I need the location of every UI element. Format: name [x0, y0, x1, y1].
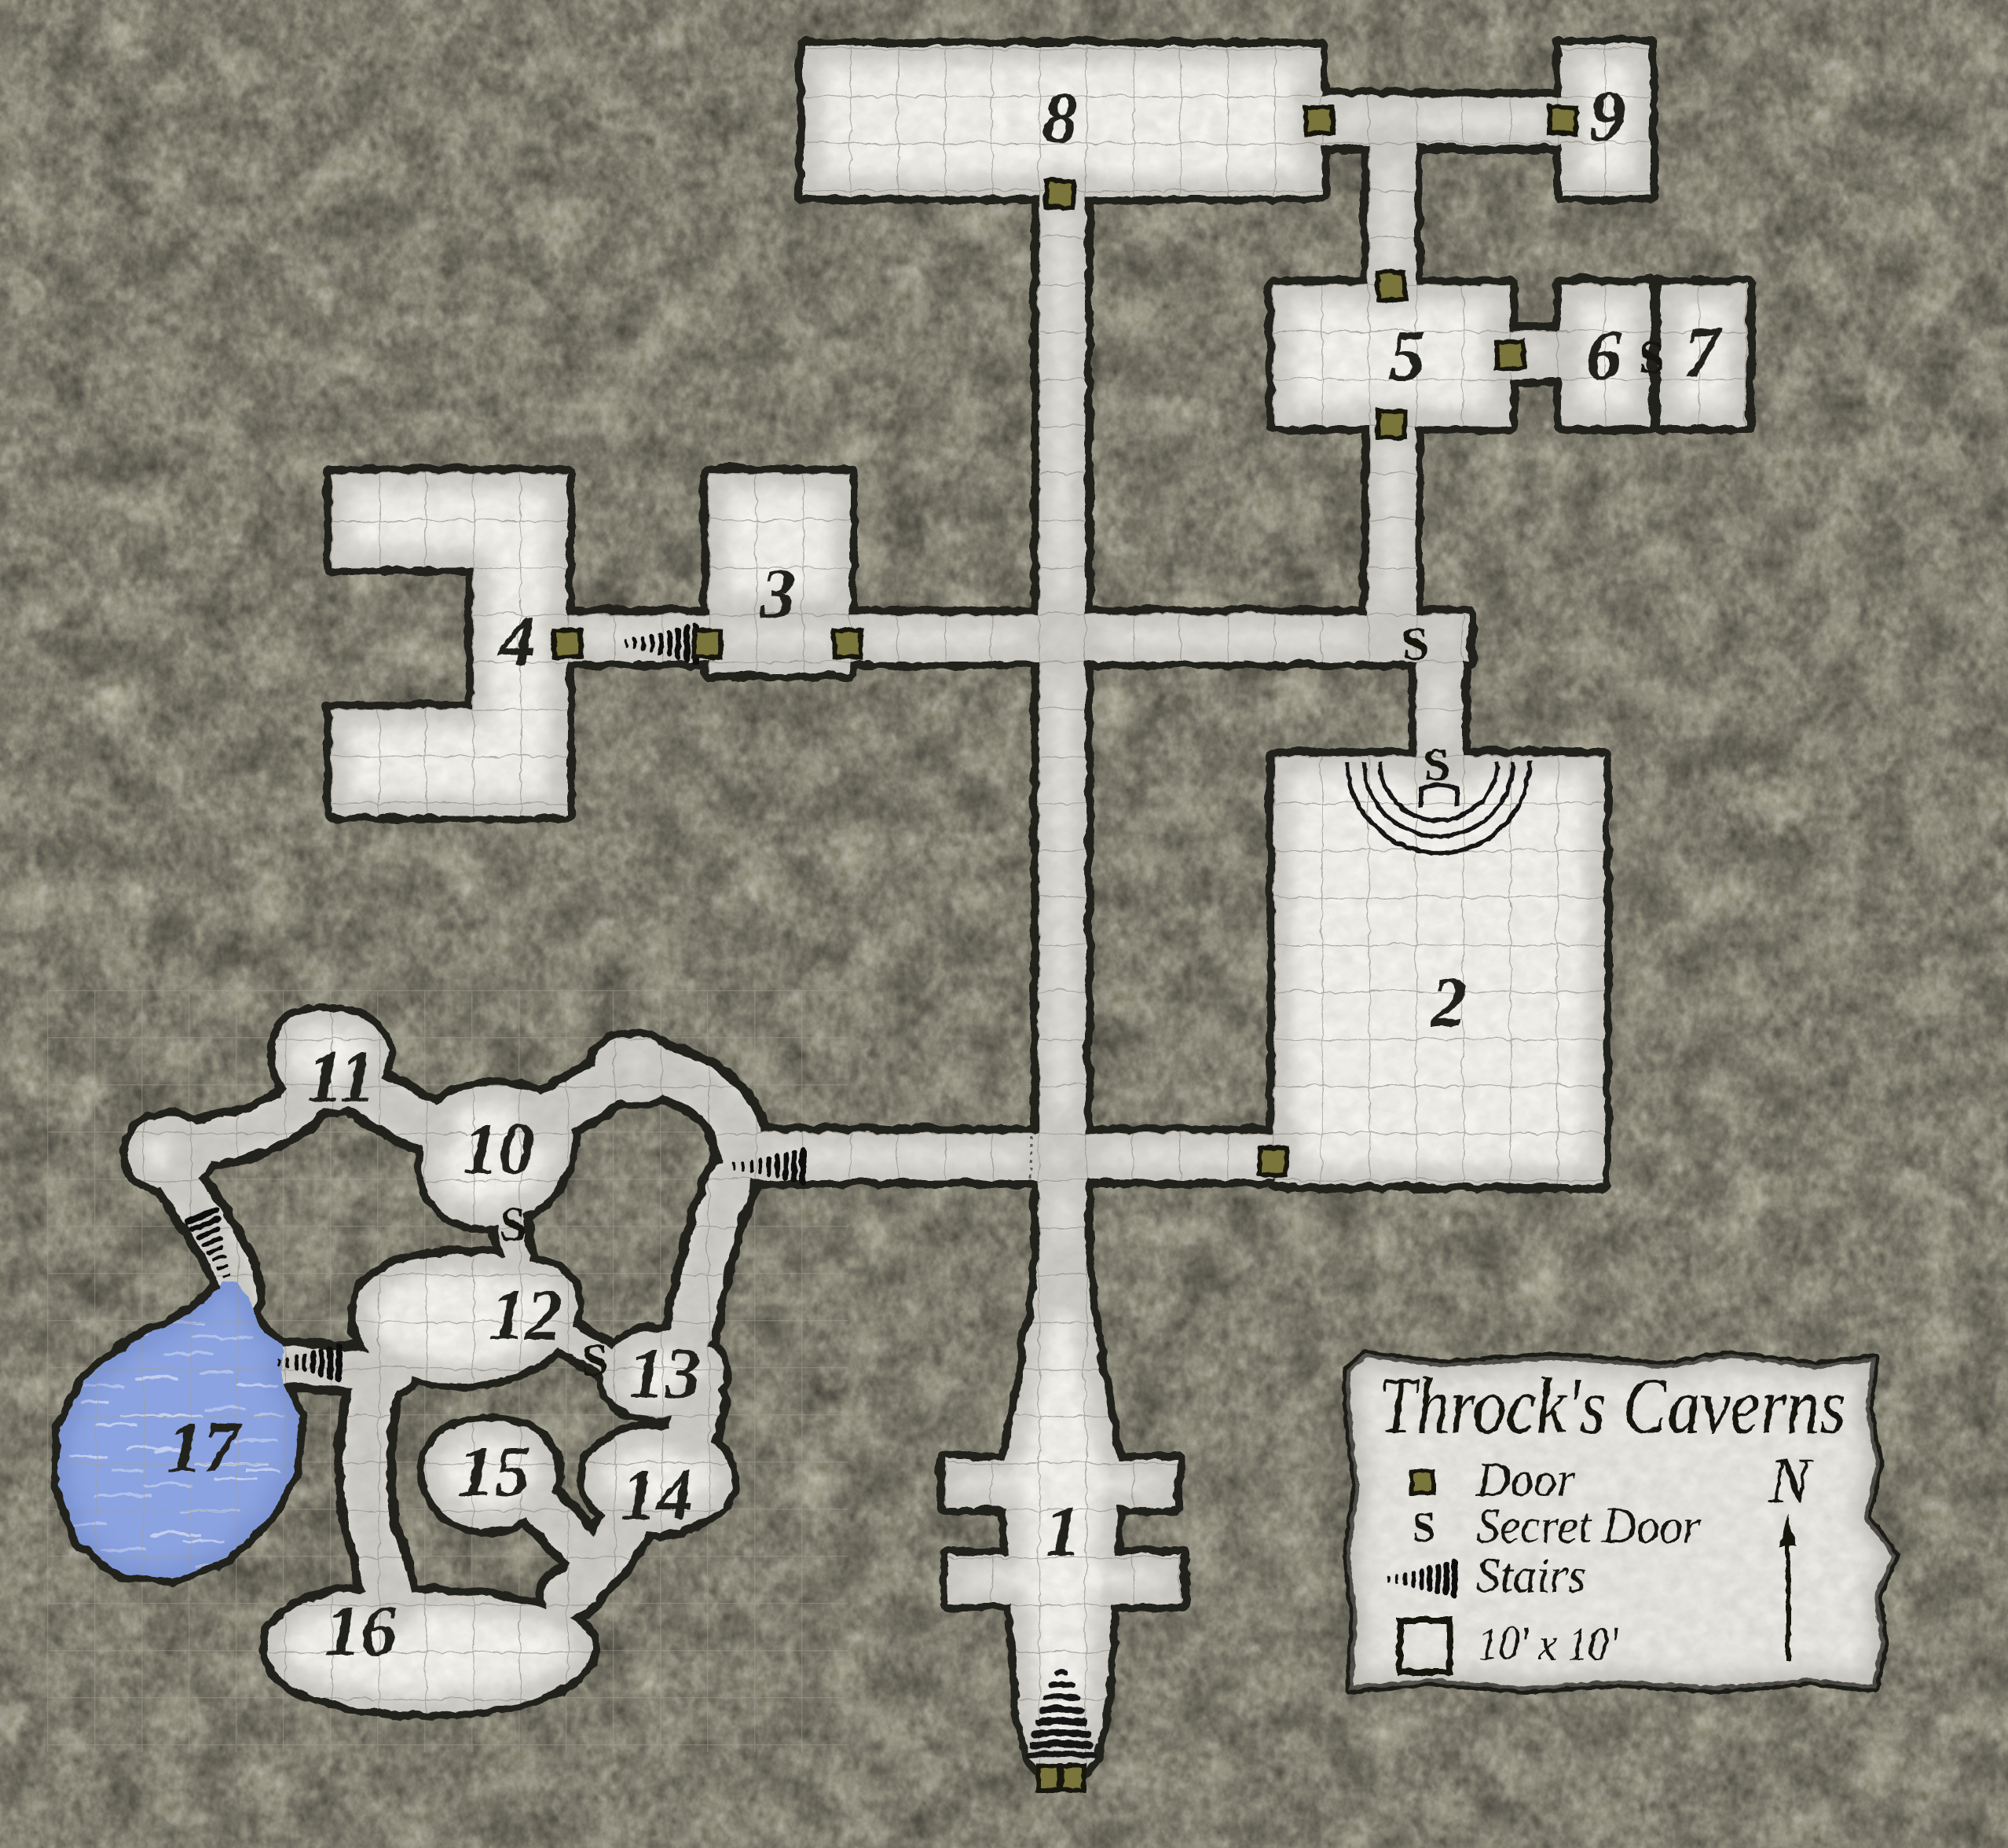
svg-text:Stairs: Stairs	[1475, 1546, 1585, 1602]
svg-text:12: 12	[489, 1274, 561, 1354]
svg-text:S: S	[1637, 331, 1663, 383]
svg-text:S: S	[499, 1198, 525, 1250]
svg-text:10' x 10': 10' x 10'	[1477, 1617, 1618, 1669]
svg-text:16: 16	[324, 1589, 396, 1670]
svg-text:17: 17	[166, 1406, 241, 1487]
svg-text:S: S	[581, 1333, 606, 1385]
svg-text:2: 2	[1428, 961, 1466, 1041]
svg-text:Secret Door: Secret Door	[1475, 1497, 1701, 1553]
svg-text:14: 14	[620, 1454, 692, 1534]
svg-text:7: 7	[1683, 311, 1722, 391]
svg-text:N: N	[1767, 1446, 1813, 1515]
svg-text:9: 9	[1588, 75, 1625, 155]
svg-text:S: S	[1411, 1502, 1435, 1549]
svg-text:3: 3	[758, 552, 795, 632]
svg-text:15: 15	[457, 1430, 529, 1510]
svg-text:S: S	[1423, 738, 1449, 790]
svg-text:10: 10	[461, 1108, 533, 1188]
svg-text:13: 13	[628, 1332, 700, 1412]
svg-text:Throck's Caverns: Throck's Caverns	[1378, 1361, 1845, 1450]
svg-text:1: 1	[1044, 1490, 1080, 1570]
svg-text:S: S	[1402, 617, 1427, 669]
svg-text:6: 6	[1585, 314, 1621, 394]
svg-text:5: 5	[1388, 314, 1424, 394]
svg-text:8: 8	[1041, 77, 1077, 157]
svg-text:11: 11	[306, 1036, 375, 1116]
svg-text:4: 4	[497, 599, 534, 680]
